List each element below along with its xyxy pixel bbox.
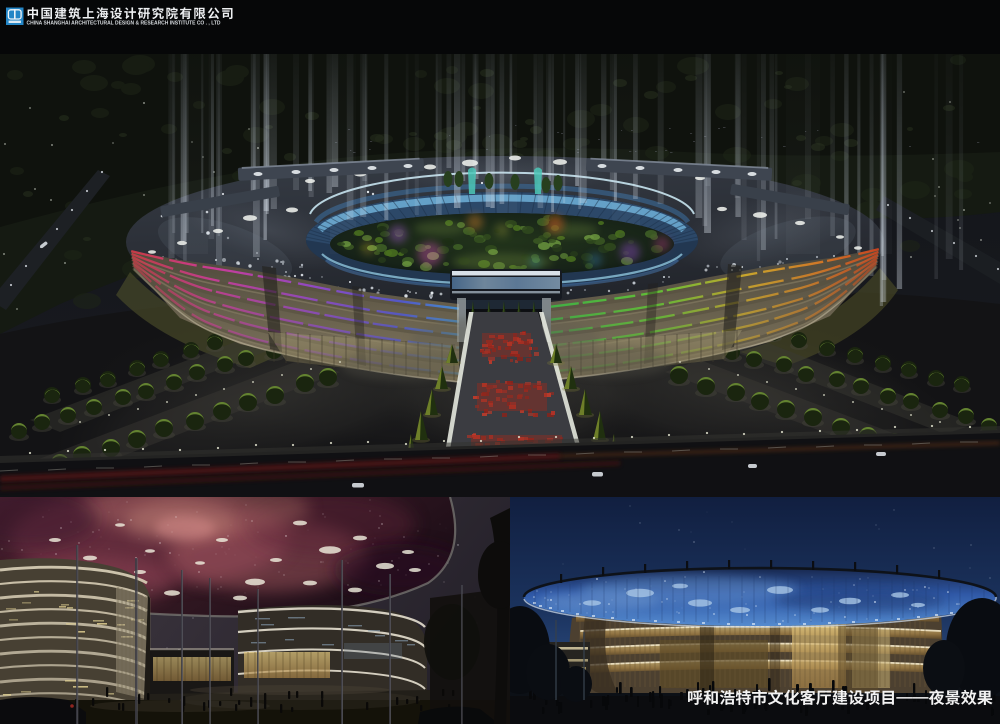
svg-text:CHINA SHANGHAI ARCHITECTURAL D: CHINA SHANGHAI ARCHITECTURAL DESIGN & RE… bbox=[27, 21, 221, 27]
